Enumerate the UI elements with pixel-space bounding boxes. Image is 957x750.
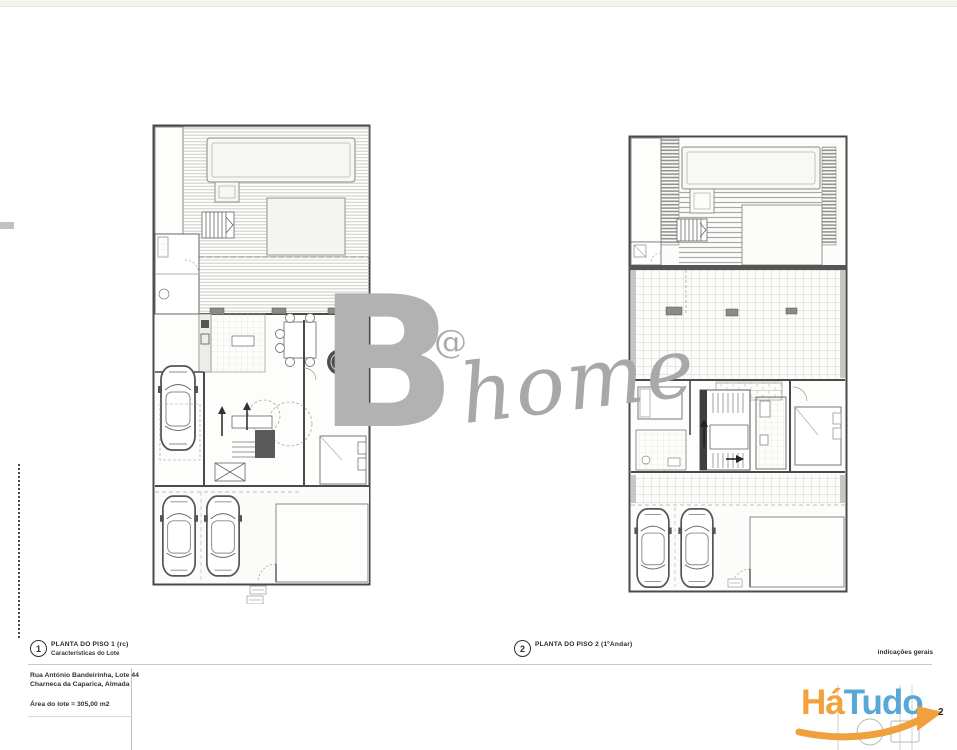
address-line-1: Rua António Bandeirinha, Lote 44 — [30, 671, 150, 680]
plan1-round-tub — [327, 349, 353, 375]
plan2-parked-car-1 — [634, 509, 671, 587]
plan2-roof-stairs — [677, 219, 707, 241]
sheet-number: 2 — [938, 707, 944, 718]
plan2-parked-car-2 — [678, 509, 715, 587]
plan1-marker: 1 — [30, 640, 47, 657]
plan1-side-strip — [155, 127, 183, 234]
watermark-at-icon: @ — [434, 322, 467, 361]
left-margin-tick — [0, 222, 14, 229]
plan2-bathroom-left — [636, 430, 686, 470]
plan2-marker: 2 — [514, 640, 531, 657]
plan1-subtitle: Características do Lote — [51, 649, 128, 658]
plan2-utility-room — [631, 242, 661, 265]
titleblock-subline — [28, 716, 131, 717]
plan1-parked-car-2 — [204, 496, 242, 576]
plan1-title: PLANTA DO PISO 1 (rc) — [51, 640, 128, 649]
plan1-dimension-boxes — [247, 586, 266, 604]
plan2-title: PLANTA DO PISO 2 (1ºAndar) — [535, 640, 632, 649]
address-line-2: Charneca da Caparica, Almada — [30, 680, 150, 689]
plan2-lower-terrace — [631, 475, 845, 503]
plan2-roof-opening — [742, 205, 822, 265]
swoosh-arrow-icon — [795, 700, 950, 745]
floor-plan-2 — [628, 135, 848, 597]
drawing-sheet: B @ home 1 PLANTA DO PISO 1 (rc) Caracte… — [0, 0, 957, 750]
plan1-roof-stairs — [202, 212, 234, 238]
plan1-pool — [207, 138, 355, 182]
plan1-shaft — [215, 463, 245, 481]
plan1-garage-car — [158, 366, 198, 450]
plan1-desk — [350, 364, 366, 394]
top-band — [0, 0, 957, 7]
plan1-number: 1 — [36, 644, 41, 654]
lot-area-line: Área do lote = 305,00 m2 — [30, 700, 150, 709]
left-margin-microtext — [18, 464, 20, 640]
plan2-stairs — [700, 390, 750, 470]
plan2-deck-band-left — [661, 138, 679, 245]
plan1-roof-opening — [267, 198, 345, 255]
plan2-level-band — [629, 265, 847, 270]
plan1-bed — [320, 436, 366, 484]
plan1-kitchen — [199, 314, 265, 372]
plan2-dimension-box — [728, 579, 742, 587]
floor-plan-1 — [152, 124, 372, 604]
plan1-utility-rooms — [155, 234, 199, 314]
plan2-skylight — [690, 189, 714, 213]
plan2-number: 2 — [520, 644, 525, 654]
plan1-parked-car-1 — [160, 496, 198, 576]
plan2-pool — [682, 147, 820, 189]
plan1-label: 1 PLANTA DO PISO 1 (rc) Características … — [30, 640, 128, 658]
plan2-bathroom-center — [756, 397, 786, 469]
plan2-deck-band-right — [822, 147, 836, 245]
plan2-label: 2 PLANTA DO PISO 2 (1ºAndar) — [514, 640, 632, 657]
plan1-upper-terrace — [199, 258, 369, 314]
plan2-tiled-terrace — [631, 270, 845, 378]
plan2-side-strip — [631, 138, 661, 242]
general-notes-label: indicações gerais — [855, 649, 933, 656]
address-block: Rua António Bandeirinha, Lote 44 Charnec… — [30, 671, 150, 709]
plan1-skylight — [215, 182, 239, 202]
